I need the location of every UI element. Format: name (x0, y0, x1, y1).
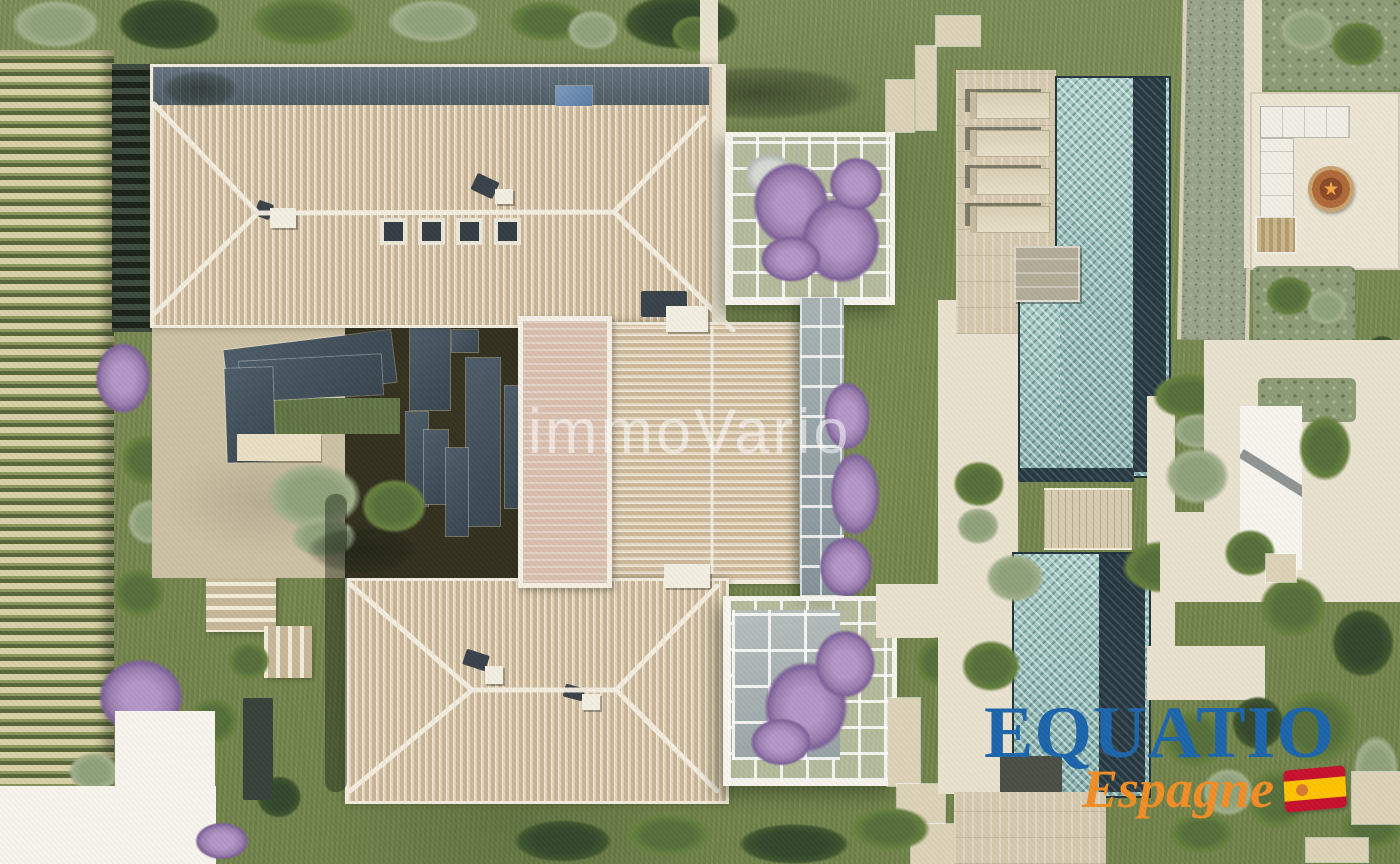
solar-panel (452, 330, 478, 352)
shrub (1288, 402, 1362, 494)
hedge (608, 804, 730, 864)
white-terrace (115, 711, 215, 787)
solar-panel (466, 358, 500, 526)
shrub (948, 500, 1008, 552)
sun-lounger (970, 168, 1050, 195)
roof-chimney (270, 208, 296, 228)
hedge (834, 798, 946, 860)
bougainvillea (740, 710, 822, 774)
sun-lounger (970, 130, 1050, 157)
paved-patch (1266, 554, 1296, 582)
roof-chimney (582, 694, 600, 710)
agency-logo: EQUATIO Espagne (984, 696, 1354, 816)
stone-slab (886, 80, 914, 132)
paved-patch (1352, 772, 1400, 824)
watermark: immoVario (528, 396, 851, 468)
hedge (368, 0, 500, 52)
shrub (220, 634, 278, 688)
outdoor-sofa (1260, 138, 1294, 218)
sunken-pool-platform (1014, 246, 1080, 302)
olive-shrub (1152, 436, 1242, 516)
shrub (1320, 12, 1396, 76)
tree-shadow (148, 64, 252, 114)
white-margin (0, 786, 216, 864)
courtyard-lawn (255, 398, 400, 434)
shrub (974, 544, 1056, 612)
purple-tree (86, 330, 160, 426)
sun-lounger (970, 92, 1050, 119)
bougainvillea (804, 618, 886, 710)
pool-dark-edge (1018, 468, 1134, 482)
bougainvillea (750, 228, 832, 290)
roof-skylight (418, 218, 445, 245)
logo-region: Espagne (1082, 762, 1274, 816)
solar-panel (446, 448, 468, 536)
outdoor-sofa (1260, 106, 1350, 138)
roof-chimney (485, 666, 503, 684)
roof-skylight (456, 218, 483, 245)
hedge (228, 0, 380, 56)
tree-canopy (98, 0, 240, 60)
purple-tree (186, 816, 258, 864)
dark-hedge (243, 698, 273, 800)
shrub (1298, 282, 1356, 332)
roof-skylight (380, 218, 407, 245)
fire-pit: ★ (1308, 166, 1354, 212)
stone-slab (916, 46, 936, 130)
logo-region-row: Espagne (1082, 762, 1354, 816)
paved-patch (1306, 838, 1368, 862)
stone-slab (936, 16, 980, 46)
wooden-bench (1257, 218, 1295, 252)
roof-chimney (666, 306, 708, 332)
pool-deck-bridge (1044, 488, 1132, 550)
stepping-stone (888, 698, 920, 786)
sun-lounger (970, 206, 1050, 233)
roof-south-wing (345, 578, 729, 804)
lap-pool-upper-west (1018, 300, 1060, 478)
tree-shadow (325, 494, 347, 792)
rooftop-solar-panel (556, 86, 592, 106)
flame-icon: ★ (1322, 180, 1339, 199)
bougainvillea (820, 148, 892, 220)
roof-skylight (494, 218, 521, 245)
tree-shadow (286, 518, 438, 582)
roof-chimney (495, 189, 513, 204)
aerial-villa-rendering: ★ immoVario EQUATIO Espagne (0, 0, 1400, 864)
side-path (712, 64, 726, 322)
roof-chimney (664, 564, 710, 588)
flag-emblem (1296, 784, 1309, 797)
solar-panel (410, 328, 450, 410)
spanish-flag-icon (1283, 765, 1347, 812)
